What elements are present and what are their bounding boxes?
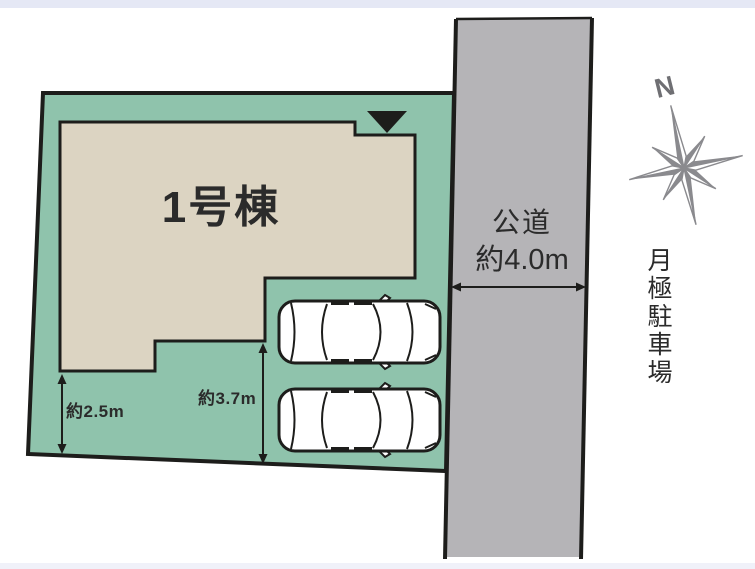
road-label-box: 公道 約4.0m (458, 206, 586, 277)
compass-rose-icon (616, 93, 755, 236)
building-label: 1号棟 (131, 186, 311, 230)
car-top-view-icon (279, 295, 440, 369)
adjacent-parking-label: 月極駐車場 (645, 247, 670, 387)
road-width-label: 約4.0m (458, 243, 586, 278)
road-shape (445, 18, 592, 559)
setback-front-label: 約3.7m (198, 390, 256, 407)
site-plan-drawing (0, 0, 755, 569)
site-plan: 1号棟 約2.5m 約3.7m 公道 約4.0m N 月極駐車場 (0, 0, 755, 569)
road-name-label: 公道 (458, 206, 586, 240)
setback-left-label: 約2.5m (66, 403, 124, 420)
car-top-view-icon (279, 383, 440, 457)
